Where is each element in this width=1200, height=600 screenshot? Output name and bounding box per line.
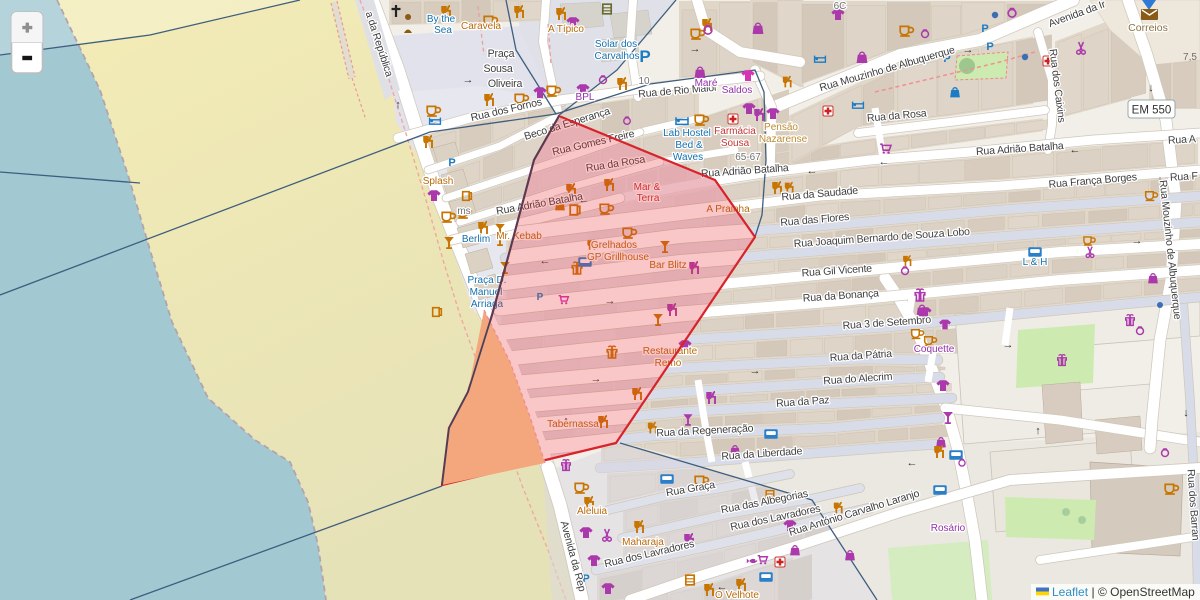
svg-text:↓: ↓ bbox=[1148, 82, 1154, 94]
svg-text:65-67: 65-67 bbox=[735, 152, 761, 163]
svg-text:Bed &: Bed & bbox=[675, 140, 703, 151]
svg-text:→: → bbox=[963, 44, 974, 56]
svg-text:←: ← bbox=[1070, 144, 1081, 156]
svg-text:Sousa: Sousa bbox=[721, 138, 750, 149]
svg-text:Carvalhos: Carvalhos bbox=[594, 51, 639, 62]
svg-text:P: P bbox=[448, 157, 455, 169]
svg-text:Aleluia: Aleluia bbox=[577, 506, 607, 517]
svg-text:O Velhote: O Velhote bbox=[715, 590, 759, 600]
svg-text:→: → bbox=[750, 365, 761, 377]
svg-text:10: 10 bbox=[638, 76, 650, 87]
svg-text:↑: ↑ bbox=[395, 99, 401, 111]
svg-text:Solar dos: Solar dos bbox=[595, 39, 637, 50]
svg-text:Saldos: Saldos bbox=[722, 85, 753, 96]
svg-text:Berlim: Berlim bbox=[462, 234, 490, 245]
svg-text:Waves: Waves bbox=[673, 152, 703, 163]
svg-text:Nazarense: Nazarense bbox=[759, 134, 808, 145]
svg-text:ms: ms bbox=[457, 206, 470, 217]
svg-text:By the: By the bbox=[427, 14, 456, 25]
svg-text:Rua F: Rua F bbox=[1170, 170, 1199, 183]
svg-text:Caravela: Caravela bbox=[461, 21, 501, 32]
svg-text:7,5: 7,5 bbox=[1183, 52, 1197, 63]
svg-text:Rosário: Rosário bbox=[931, 523, 966, 534]
svg-text:→: → bbox=[463, 74, 474, 86]
svg-text:Sousa: Sousa bbox=[483, 63, 512, 75]
svg-text:→: → bbox=[1003, 339, 1014, 351]
svg-text:Pensão: Pensão bbox=[764, 122, 798, 133]
svg-text:Maré: Maré bbox=[695, 78, 718, 89]
svg-text:P: P bbox=[981, 23, 988, 35]
svg-text:Lab Hostel: Lab Hostel bbox=[663, 128, 711, 139]
svg-text:P: P bbox=[639, 47, 650, 66]
svg-text:Farmácia: Farmácia bbox=[714, 126, 756, 137]
svg-text:Correios: Correios bbox=[1128, 22, 1168, 34]
svg-text:→: → bbox=[690, 43, 701, 55]
svg-text:↓: ↓ bbox=[1183, 407, 1189, 419]
svg-text:Rua A: Rua A bbox=[1168, 133, 1198, 147]
svg-text:6C: 6C bbox=[834, 1, 847, 12]
svg-text:| © OpenStreetMap: | © OpenStreetMap bbox=[1092, 585, 1196, 599]
svg-text:Praça: Praça bbox=[488, 48, 515, 60]
svg-text:←: ← bbox=[907, 457, 918, 469]
svg-text:A Típico: A Típico bbox=[548, 24, 584, 35]
svg-text:BPL: BPL bbox=[576, 92, 595, 103]
svg-text:Oliveira: Oliveira bbox=[488, 78, 523, 90]
svg-text:Maharaja: Maharaja bbox=[622, 537, 664, 548]
svg-text:EM 550: EM 550 bbox=[1132, 105, 1172, 117]
svg-text:Sea: Sea bbox=[434, 25, 452, 36]
svg-text:Coquette: Coquette bbox=[914, 344, 955, 355]
svg-text:↑: ↑ bbox=[1035, 425, 1041, 437]
svg-text:L & H: L & H bbox=[1023, 257, 1048, 268]
svg-text:Splash: Splash bbox=[423, 176, 454, 187]
svg-text:Leaflet: Leaflet bbox=[1052, 585, 1089, 599]
svg-text:←: ← bbox=[879, 156, 890, 168]
svg-text:P: P bbox=[986, 41, 993, 53]
svg-text:→: → bbox=[1132, 235, 1143, 247]
svg-text:←: ← bbox=[807, 165, 818, 177]
